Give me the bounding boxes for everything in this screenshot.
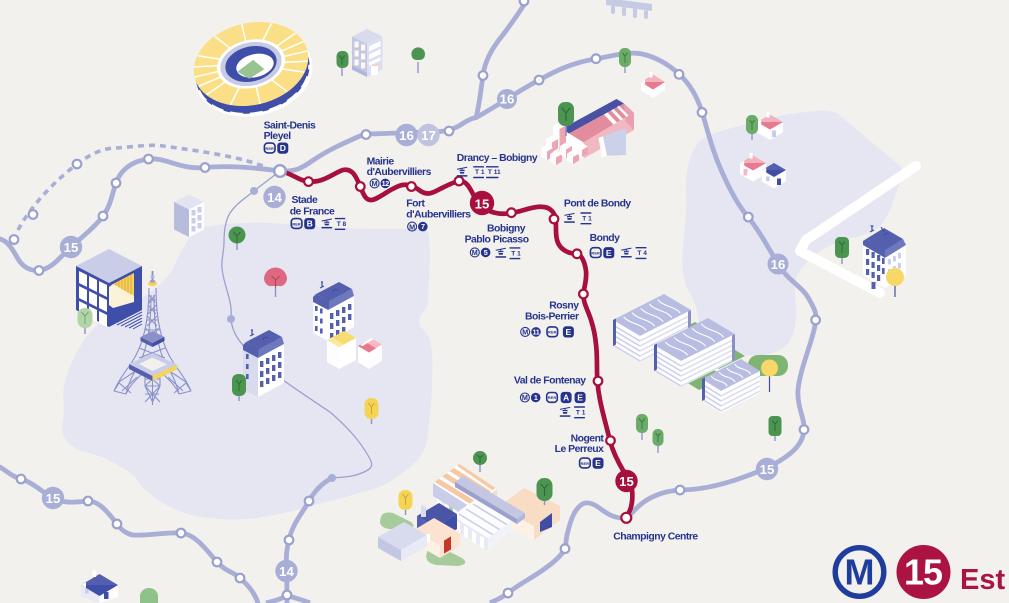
- svg-text:T 1: T 1: [511, 250, 521, 257]
- svg-text:T 1: T 1: [475, 169, 485, 176]
- svg-text:17: 17: [421, 128, 436, 143]
- svg-text:Pablo Picasso: Pablo Picasso: [465, 234, 529, 245]
- svg-text:Bobigny: Bobigny: [487, 224, 526, 235]
- svg-text:T 1: T 1: [582, 215, 592, 222]
- svg-text:16: 16: [500, 92, 515, 107]
- svg-text:T 1: T 1: [576, 409, 586, 416]
- svg-text:12: 12: [382, 179, 390, 188]
- svg-text:1: 1: [534, 393, 538, 402]
- svg-text:Pleyel: Pleyel: [264, 131, 292, 142]
- svg-text:14: 14: [267, 190, 282, 205]
- svg-text:Drancy – Bobigny: Drancy – Bobigny: [457, 153, 538, 164]
- svg-text:M: M: [845, 552, 875, 593]
- svg-text:E: E: [566, 327, 572, 337]
- svg-text:T 11: T 11: [488, 169, 501, 176]
- svg-text:Nogent: Nogent: [571, 433, 605, 444]
- svg-text:15: 15: [904, 552, 943, 593]
- svg-text:15: 15: [46, 491, 61, 506]
- svg-text:A: A: [563, 393, 569, 403]
- svg-text:15: 15: [760, 462, 775, 477]
- svg-text:15: 15: [619, 474, 634, 489]
- svg-text:16: 16: [771, 257, 786, 272]
- svg-text:Bois-Perrier: Bois-Perrier: [525, 311, 579, 322]
- svg-text:Val de Fontenay: Val de Fontenay: [514, 376, 586, 387]
- svg-text:Le Perreux: Le Perreux: [555, 444, 604, 455]
- svg-text:E: E: [606, 248, 612, 258]
- svg-text:Fort: Fort: [406, 199, 425, 210]
- svg-text:T 8: T 8: [337, 221, 347, 228]
- svg-text:11: 11: [533, 327, 540, 336]
- svg-text:de France: de France: [290, 206, 335, 217]
- svg-text:B: B: [307, 219, 313, 229]
- svg-text:Saint-Denis: Saint-Denis: [264, 120, 316, 131]
- svg-text:15: 15: [475, 197, 490, 212]
- svg-text:T 4: T 4: [637, 250, 647, 257]
- svg-text:Mairie: Mairie: [367, 156, 395, 167]
- svg-text:16: 16: [399, 128, 414, 143]
- svg-text:7: 7: [421, 222, 425, 231]
- svg-text:15: 15: [64, 240, 79, 255]
- svg-text:E: E: [577, 393, 583, 403]
- svg-text:E: E: [595, 458, 601, 468]
- svg-text:5: 5: [484, 248, 488, 257]
- svg-text:Stade: Stade: [292, 195, 319, 206]
- svg-text:Est: Est: [960, 564, 1005, 596]
- svg-text:d'Aubervilliers: d'Aubervilliers: [367, 167, 432, 178]
- svg-text:d'Aubervilliers: d'Aubervilliers: [406, 209, 471, 220]
- svg-text:D: D: [280, 143, 286, 153]
- svg-text:Champigny Centre: Champigny Centre: [613, 532, 698, 543]
- svg-text:Pont de Bondy: Pont de Bondy: [564, 198, 632, 209]
- svg-text:Rosny: Rosny: [549, 301, 579, 312]
- svg-text:Bondy: Bondy: [590, 233, 621, 244]
- svg-text:14: 14: [279, 564, 294, 579]
